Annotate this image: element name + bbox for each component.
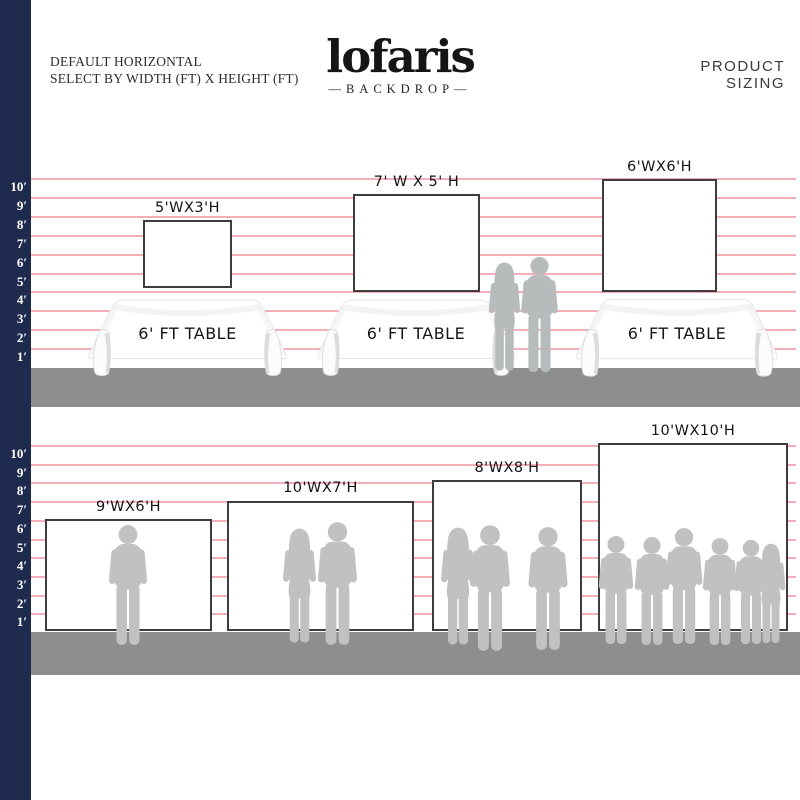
group-silhouette-10x10 (596, 527, 788, 646)
group-silhouette-8x8 (438, 520, 574, 652)
table-label-1: 6' FT TABLE (85, 324, 290, 343)
page-title: PRODUCT SIZING (640, 58, 785, 92)
logo-wordmark: lofaris (300, 34, 500, 80)
subtitle-line2: SELECT BY WIDTH (FT) X HEIGHT (FT) (50, 70, 299, 87)
man-silhouette (528, 527, 568, 650)
subtitle-line1: DEFAULT HORIZONTAL (50, 53, 299, 70)
ruler-label: 1′ (0, 615, 27, 629)
ruler-label: 10′ (0, 180, 27, 194)
man-silhouette (470, 525, 511, 650)
backdrop-size-label-10x10: 10'WX10'H (598, 423, 788, 439)
lofaris-logo: lofaris —BACKDROP— (300, 34, 500, 97)
backdrop-size-label-7x5: 7' W X 5' H (353, 174, 480, 190)
ruler-label: 6′ (0, 256, 27, 270)
backdrop-size-label-9x6: 9'WX6'H (45, 499, 212, 515)
ruler-bar (0, 0, 31, 800)
ruler-label: 7′ (0, 237, 27, 251)
backdrop-size-label-10x7: 10'WX7'H (227, 480, 414, 496)
ruler-label: 5′ (0, 275, 27, 289)
couple-silhouette-10x7 (280, 521, 366, 646)
man-silhouette (318, 522, 358, 645)
ruler-label: 3′ (0, 312, 27, 326)
ruler-label: 4′ (0, 293, 27, 307)
backdrop-5x3 (143, 220, 232, 288)
ruler-label: 8′ (0, 218, 27, 232)
ruler-label: 2′ (0, 331, 27, 345)
woman-silhouette (283, 529, 317, 643)
man-silhouette (703, 538, 738, 645)
backdrop-7x5 (353, 194, 480, 292)
man-silhouette (109, 525, 148, 645)
backdrop-size-label-5x3: 5'WX3'H (143, 200, 232, 216)
woman-silhouette (441, 528, 475, 645)
ruler-label: 1′ (0, 350, 27, 364)
size-selection-note: DEFAULT HORIZONTAL SELECT BY WIDTH (FT) … (50, 53, 299, 87)
ruler-label: 10′ (0, 447, 27, 461)
man-silhouette (521, 257, 558, 372)
ruler-label: 4′ (0, 559, 27, 573)
ruler-label: 3′ (0, 578, 27, 592)
backdrop-size-label-8x8: 8'WX8'H (432, 460, 582, 476)
ruler-label: 8′ (0, 484, 27, 498)
ruler-label: 7′ (0, 503, 27, 517)
man-silhouette-9x6 (100, 524, 156, 647)
man-silhouette (635, 537, 670, 645)
ruler-label: 9′ (0, 466, 27, 480)
man-silhouette (599, 536, 634, 644)
backdrop-6x6 (602, 179, 717, 292)
woman-silhouette (489, 262, 521, 370)
table-label-3: 6' FT TABLE (573, 324, 781, 343)
man-silhouette (665, 528, 702, 644)
logo-subtitle: —BACKDROP— (300, 82, 500, 97)
ruler-label: 9′ (0, 199, 27, 213)
product-sizing-chart: DEFAULT HORIZONTAL SELECT BY WIDTH (FT) … (0, 0, 800, 800)
ruler-label: 6′ (0, 522, 27, 536)
backdrop-size-label-6x6: 6'WX6'H (602, 159, 717, 175)
couple-silhouette-row1 (486, 256, 566, 373)
ruler-label: 2′ (0, 597, 27, 611)
ruler-label: 5′ (0, 541, 27, 555)
